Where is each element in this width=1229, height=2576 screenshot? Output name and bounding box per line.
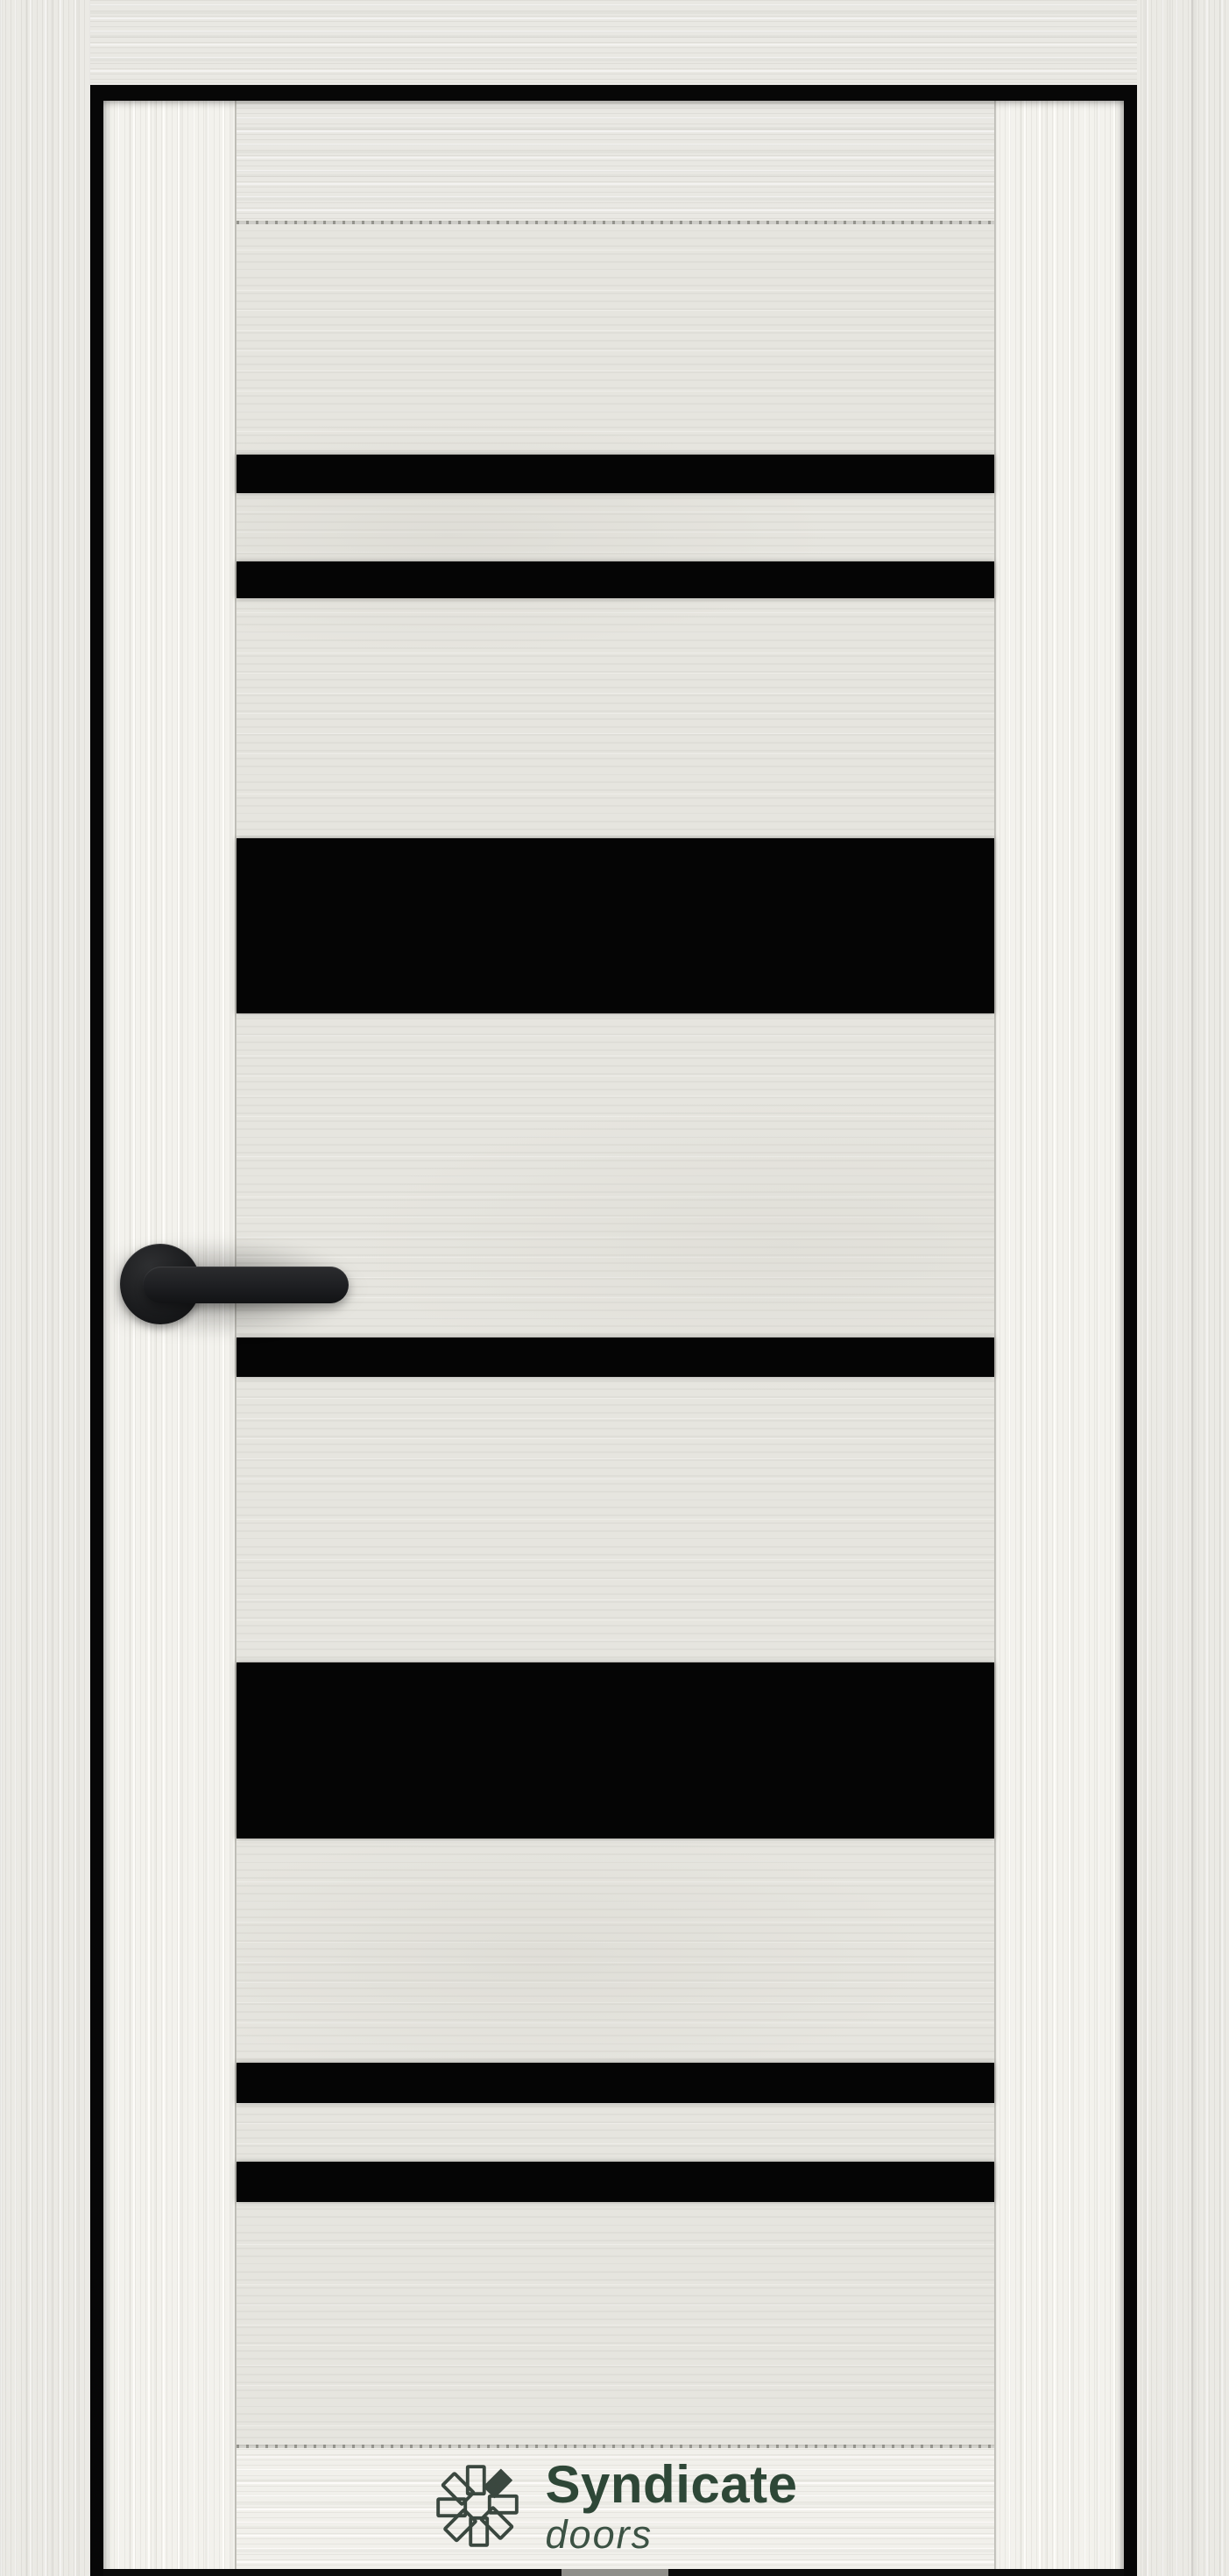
floor-highlight-notch — [562, 2569, 668, 2576]
header-casing — [90, 0, 1137, 85]
brand-tagline: doors — [546, 2515, 653, 2554]
door-product-photo: Syndicate doors — [0, 0, 1229, 2576]
casing-seam-right — [1191, 0, 1193, 2576]
door-handle-lever — [143, 1267, 349, 1303]
leaf-top-rail — [237, 101, 994, 224]
brand-logo: Syndicate doors — [237, 2452, 994, 2559]
brand-name: Syndicate — [546, 2459, 798, 2511]
syndicate-pinwheel-logo-icon — [434, 2460, 521, 2552]
bottom-rail-seam — [237, 2445, 994, 2448]
leaf-right-stile — [994, 101, 1124, 2576]
frame-outline-top — [90, 85, 1137, 101]
frame-outline-left — [90, 85, 103, 2576]
top-rail-seam — [237, 221, 994, 224]
brand-text: Syndicate doors — [546, 2459, 798, 2554]
frame-outline-right — [1124, 85, 1137, 2576]
right-stile-seam — [994, 101, 996, 2576]
